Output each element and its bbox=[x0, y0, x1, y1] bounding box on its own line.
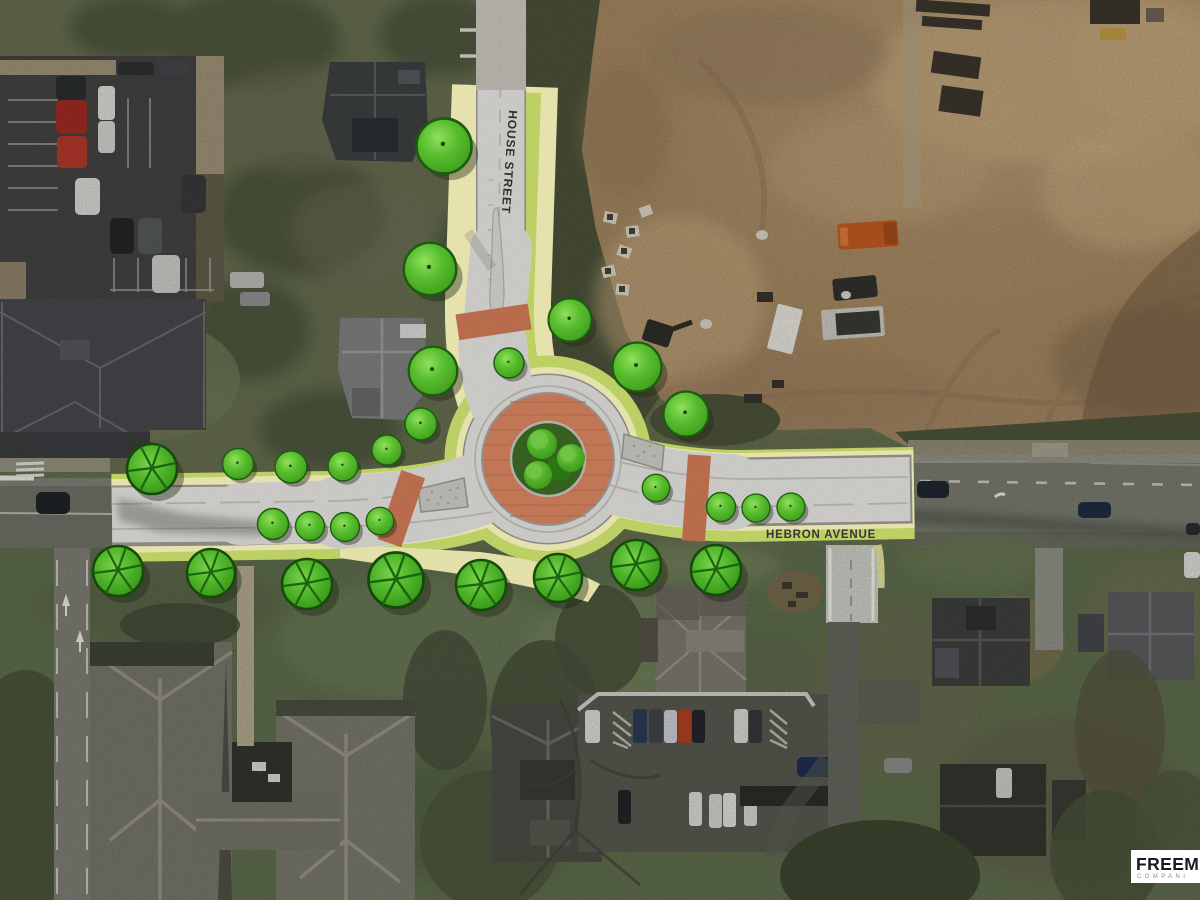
svg-text:COMPANI: COMPANI bbox=[1137, 874, 1188, 880]
svg-text:FREEMA: FREEMA bbox=[1136, 854, 1200, 874]
svg-text:HEBRON AVENUE: HEBRON AVENUE bbox=[766, 529, 876, 541]
